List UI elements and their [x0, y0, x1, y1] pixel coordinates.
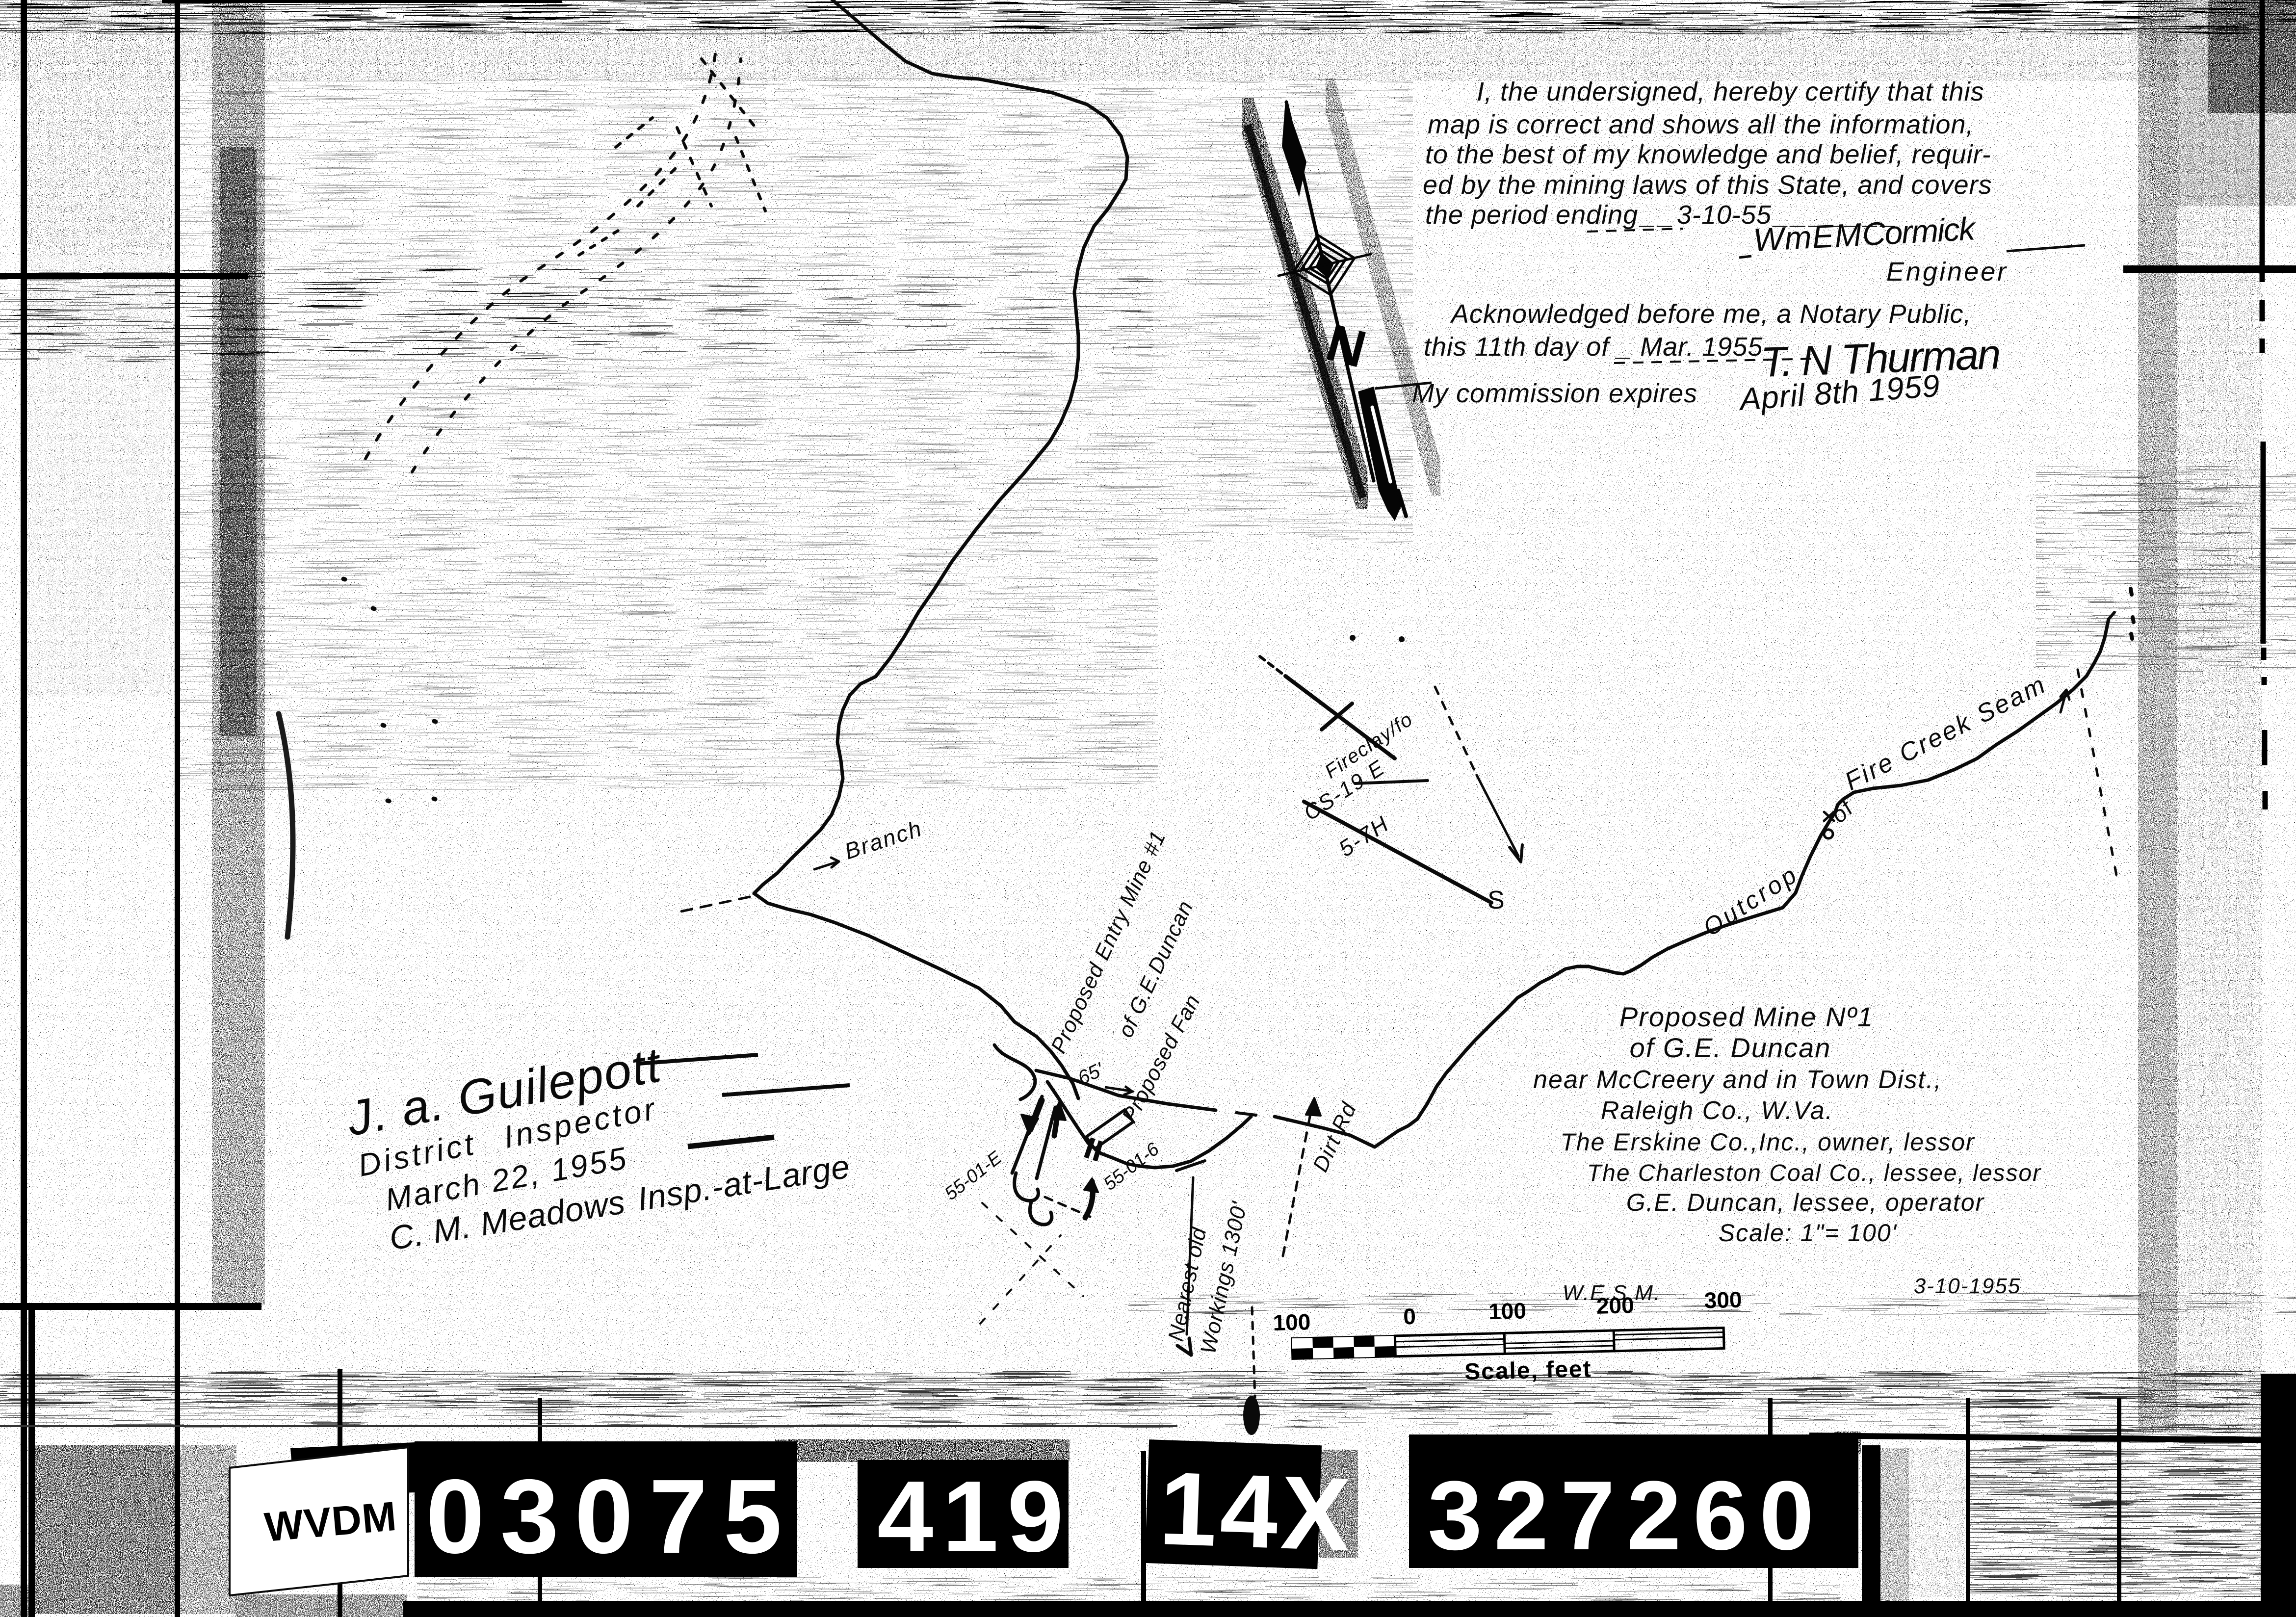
svg-text:Raleigh Co., W.Va.: Raleigh Co., W.Va. [1601, 1096, 1833, 1125]
svg-text:I, the undersigned, hereby cer: I, the undersigned, hereby certify that … [1477, 77, 1984, 106]
svg-text:G.E. Duncan, lessee, operator: G.E. Duncan, lessee, operator [1626, 1189, 1985, 1216]
svg-text:ed by the mining laws of this: ed by the mining laws of this State, and… [1423, 170, 1992, 200]
svg-text:of G.E. Duncan: of G.E. Duncan [1630, 1032, 1831, 1063]
svg-text:3-10-1955: 3-10-1955 [1914, 1274, 2021, 1298]
svg-text:this 11th day of _ Mar. 1955: this 11th day of _ Mar. 1955 [1424, 332, 1763, 362]
svg-text:Engineer: Engineer [1886, 257, 2008, 287]
svg-text:S: S [1487, 886, 1505, 914]
svg-text:Scale, feet: Scale, feet [1464, 1356, 1592, 1385]
svg-text:419: 419 [877, 1460, 1072, 1573]
svg-text:327260: 327260 [1428, 1461, 1826, 1570]
svg-text:100: 100 [1273, 1309, 1311, 1335]
svg-text:The Erskine Co.,Inc., owner, l: The Erskine Co.,Inc., owner, lessor [1560, 1128, 1975, 1156]
svg-text:My commission expires: My commission expires [1412, 379, 1697, 408]
svg-text:The Charleston Coal Co., lesse: The Charleston Coal Co., lessee, lessor [1587, 1160, 2041, 1186]
svg-text:Scale: 1"= 100': Scale: 1"= 100' [1719, 1219, 1897, 1247]
svg-text:14X: 14X [1157, 1450, 1355, 1573]
svg-text:0: 0 [1403, 1304, 1416, 1330]
svg-text:map is correct and shows all t: map is correct and shows all the informa… [1428, 110, 1974, 139]
svg-text:to the best of my knowledge an: to the best of my knowledge and belief, … [1425, 140, 1991, 169]
svg-text:03075: 03075 [426, 1457, 798, 1575]
svg-text:Proposed Mine Nº1: Proposed Mine Nº1 [1619, 1001, 1874, 1032]
svg-text:300: 300 [1704, 1287, 1742, 1313]
svg-text:200: 200 [1596, 1292, 1634, 1319]
svg-text:Acknowledged before me, a Nota: Acknowledged before me, a Notary Public, [1450, 299, 1972, 329]
svg-text:100: 100 [1488, 1298, 1527, 1324]
svg-text:near McCreery and in Town Dist: near McCreery and in Town Dist., [1533, 1066, 1942, 1094]
